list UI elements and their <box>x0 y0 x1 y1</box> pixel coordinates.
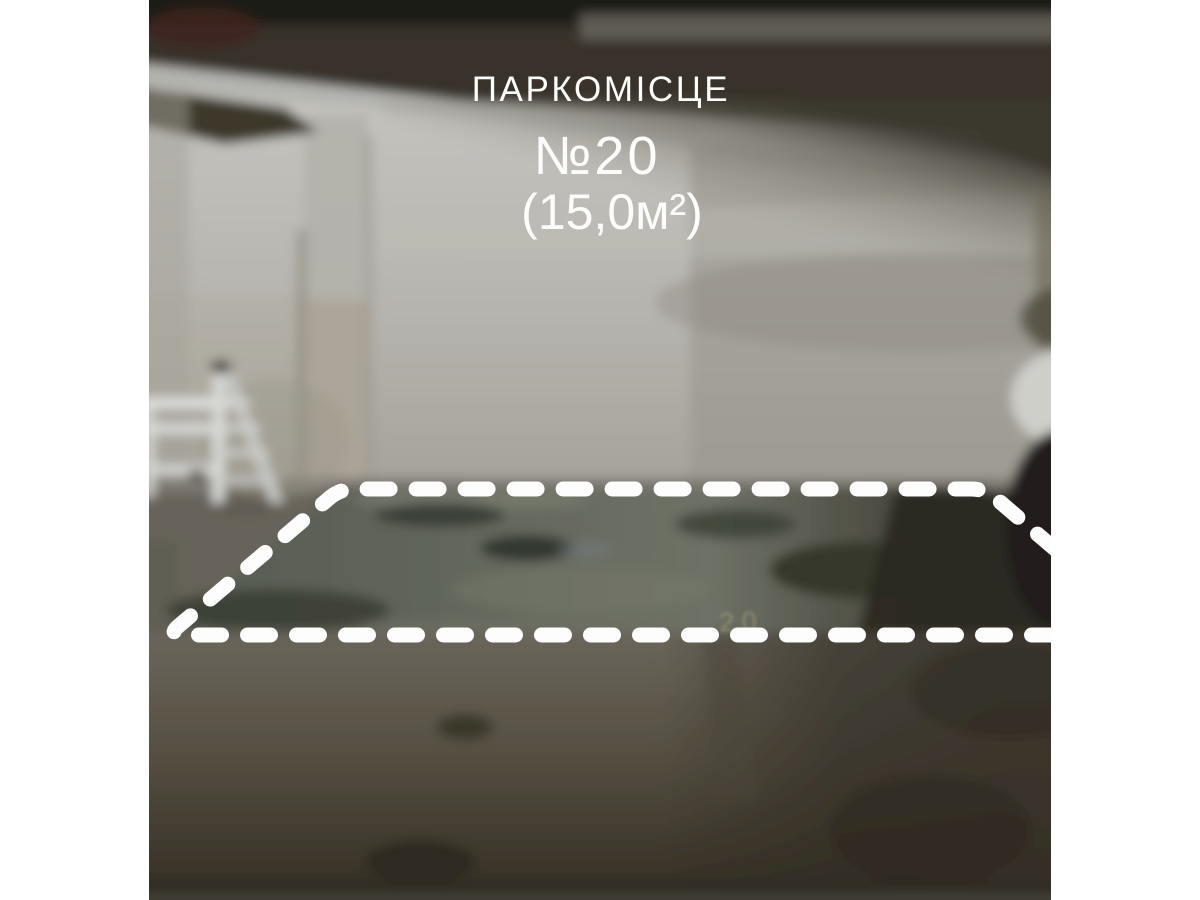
svg-text:№20: №20 <box>534 126 661 186</box>
svg-text:ПАРКОМІСЦЕ: ПАРКОМІСЦЕ <box>472 70 730 109</box>
svg-text:(15,0м²): (15,0м²) <box>521 184 703 240</box>
